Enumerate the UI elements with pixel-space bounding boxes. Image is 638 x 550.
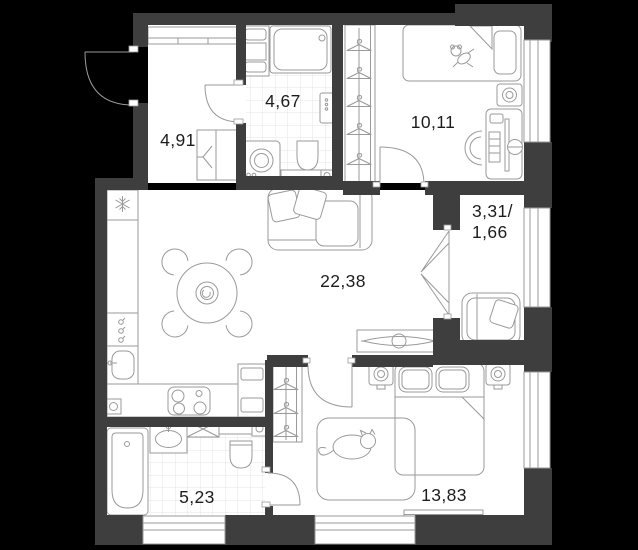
bathroom-window — [143, 516, 225, 544]
room-label-kids-room: 10,11 — [411, 112, 456, 132]
room-label-living-kitchen: 22,38 — [320, 271, 366, 291]
wall-sink-icon — [320, 93, 333, 123]
hallway-closet — [148, 27, 237, 44]
kids-room-window — [524, 40, 550, 142]
kitchen-cabinet — [107, 220, 138, 313]
desk-icon — [486, 109, 523, 179]
room-label-bedroom: 13,83 — [421, 485, 467, 505]
kitchen-counter-bottom — [107, 384, 238, 417]
kids-wardrobe — [345, 25, 375, 183]
loggia-window — [524, 208, 550, 307]
nightstand-right-icon — [486, 363, 510, 389]
room-label-bathroom-large: 5,23 — [179, 487, 215, 507]
bedroom-wardrobe — [273, 363, 302, 442]
room-label-hallway: 4,91 — [160, 130, 196, 150]
tall-cabinet-icon — [238, 364, 266, 417]
room-label-loggia-line1: 3,31/ — [472, 201, 513, 221]
laundry-column-icon — [242, 26, 269, 76]
bedroom-window — [524, 372, 550, 468]
bathtub-icon — [107, 428, 148, 515]
room-label-loggia-line2: 1,66 — [472, 222, 508, 242]
toilet-large-icon — [230, 441, 252, 468]
sofa-icon — [267, 186, 372, 250]
bedroom-bottom-window — [315, 516, 415, 544]
tv-stand-icon — [357, 330, 440, 352]
hallway-console-icon — [197, 130, 237, 180]
loggia-armchair-icon — [462, 293, 520, 345]
kids-nightstand-icon — [497, 84, 522, 106]
room-label-bathroom-small: 4,67 — [265, 91, 301, 111]
floor-plan-svg: 4,91 4,67 10,11 3,31/ 1,66 22,38 5,23 13… — [0, 0, 638, 550]
washing-machine-icon — [243, 141, 280, 180]
floor-plan: 4,91 4,67 10,11 3,31/ 1,66 22,38 5,23 13… — [0, 0, 638, 550]
shower-tray-icon — [270, 26, 331, 73]
kids-bed-icon — [403, 25, 521, 81]
bathroom-sink-icon — [150, 424, 187, 453]
